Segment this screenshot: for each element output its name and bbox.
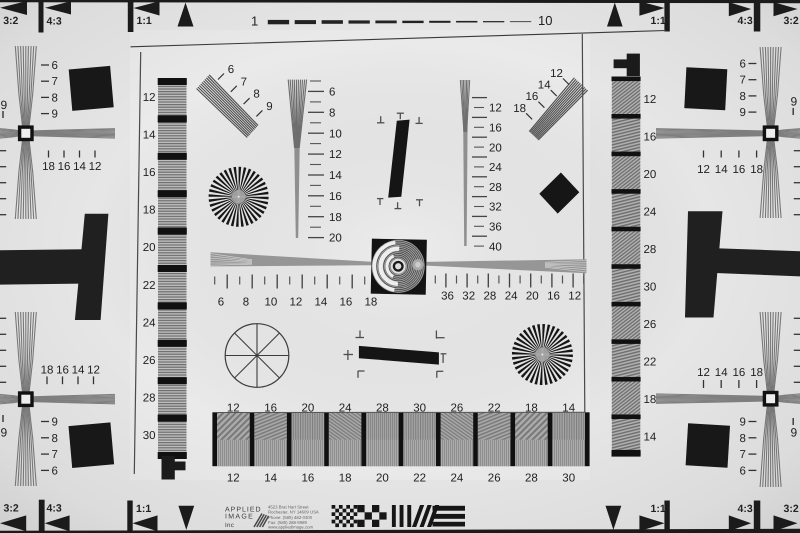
svg-text:9: 9	[52, 109, 58, 121]
svg-text:12: 12	[550, 68, 563, 80]
svg-text:20: 20	[644, 169, 657, 181]
svg-text:3:2: 3:2	[784, 503, 799, 515]
svg-text:18: 18	[41, 364, 54, 376]
svg-text:18: 18	[365, 297, 378, 309]
svg-text:30: 30	[143, 430, 156, 442]
svg-text:14: 14	[329, 170, 342, 182]
svg-text:12: 12	[329, 149, 342, 161]
svg-text:4:3: 4:3	[47, 503, 62, 515]
svg-text:28: 28	[143, 392, 156, 404]
svg-text:10: 10	[265, 297, 278, 309]
svg-text:14: 14	[143, 130, 156, 142]
svg-text:7: 7	[241, 76, 247, 88]
svg-text:36: 36	[441, 291, 454, 303]
svg-text:9: 9	[739, 107, 745, 119]
svg-text:3:2: 3:2	[3, 15, 18, 27]
svg-text:30: 30	[644, 282, 657, 294]
svg-text:12: 12	[697, 164, 710, 176]
svg-text:1: 1	[251, 14, 258, 29]
svg-text:24: 24	[143, 317, 156, 329]
svg-text:22: 22	[143, 280, 156, 292]
svg-text:9: 9	[1, 98, 8, 112]
svg-text:20: 20	[526, 291, 539, 303]
svg-text:36: 36	[489, 222, 502, 234]
svg-text:4:3: 4:3	[47, 16, 62, 28]
svg-text:24: 24	[339, 402, 352, 414]
svg-text:APPLIED: APPLIED	[225, 507, 262, 514]
svg-text:9: 9	[739, 417, 745, 429]
svg-text:12: 12	[489, 103, 502, 115]
svg-text:IMAGE: IMAGE	[225, 514, 254, 521]
svg-text:6: 6	[329, 87, 335, 99]
svg-text:28: 28	[489, 182, 502, 194]
svg-text:40: 40	[489, 241, 502, 253]
svg-text:18: 18	[42, 161, 55, 173]
svg-text:9: 9	[266, 101, 272, 113]
svg-text:6: 6	[739, 59, 745, 71]
svg-text:16: 16	[644, 132, 657, 144]
svg-text:16: 16	[302, 473, 315, 485]
svg-text:12: 12	[87, 364, 100, 376]
svg-text:20: 20	[376, 473, 389, 485]
svg-text:26: 26	[644, 319, 657, 331]
svg-text:24: 24	[489, 162, 502, 174]
svg-text:16: 16	[264, 402, 277, 414]
svg-text:6: 6	[228, 64, 234, 76]
svg-text:18: 18	[750, 367, 763, 379]
svg-text:6: 6	[739, 465, 745, 477]
svg-text:9: 9	[791, 426, 798, 440]
svg-text:7: 7	[52, 449, 58, 461]
svg-text:16: 16	[340, 297, 353, 309]
svg-text:12: 12	[89, 161, 102, 173]
svg-text:20: 20	[143, 242, 156, 254]
svg-text:16: 16	[547, 291, 560, 303]
svg-text:Inc: Inc	[225, 522, 234, 529]
svg-text:www.appliedimage.com: www.appliedimage.com	[268, 525, 314, 530]
svg-text:4:3: 4:3	[738, 503, 753, 515]
svg-text:16: 16	[489, 123, 502, 135]
svg-text:22: 22	[413, 473, 426, 485]
svg-text:14: 14	[715, 367, 728, 379]
svg-text:12: 12	[227, 402, 240, 414]
svg-text:22: 22	[644, 357, 657, 369]
svg-text:12: 12	[697, 367, 710, 379]
svg-text:18: 18	[329, 212, 342, 224]
svg-text:16: 16	[56, 364, 69, 376]
svg-text:32: 32	[462, 291, 475, 303]
svg-text:26: 26	[451, 402, 464, 414]
svg-text:26: 26	[143, 355, 156, 367]
svg-text:10: 10	[329, 128, 342, 140]
svg-text:8: 8	[739, 91, 745, 103]
svg-text:8: 8	[253, 89, 259, 101]
svg-text:12: 12	[568, 291, 581, 303]
svg-text:1:1: 1:1	[136, 503, 151, 515]
svg-text:1:1: 1:1	[651, 503, 666, 515]
svg-text:18: 18	[143, 205, 156, 217]
svg-text:12: 12	[143, 92, 156, 104]
svg-text:7: 7	[739, 75, 745, 87]
svg-text:28: 28	[376, 402, 389, 414]
svg-text:8: 8	[329, 108, 335, 120]
svg-text:7: 7	[52, 76, 58, 88]
svg-text:32: 32	[489, 202, 502, 214]
svg-text:16: 16	[143, 167, 156, 179]
svg-text:30: 30	[562, 473, 575, 485]
svg-text:9: 9	[52, 417, 58, 429]
svg-text:14: 14	[538, 80, 551, 92]
svg-text:20: 20	[329, 233, 342, 245]
svg-text:7: 7	[739, 449, 745, 461]
svg-text:16: 16	[733, 164, 746, 176]
svg-text:18: 18	[339, 473, 352, 485]
svg-text:8: 8	[52, 92, 58, 104]
svg-text:14: 14	[315, 297, 328, 309]
svg-text:14: 14	[715, 164, 728, 176]
svg-text:8: 8	[739, 433, 745, 445]
svg-text:12: 12	[227, 473, 240, 485]
svg-text:18: 18	[525, 402, 538, 414]
svg-text:4:3: 4:3	[738, 15, 753, 27]
svg-text:24: 24	[505, 291, 518, 303]
svg-text:14: 14	[562, 402, 575, 414]
svg-text:26: 26	[488, 473, 501, 485]
svg-text:1:1: 1:1	[651, 15, 666, 27]
svg-text:14: 14	[72, 364, 85, 376]
svg-text:3:2: 3:2	[784, 15, 799, 27]
svg-text:9: 9	[791, 95, 798, 109]
svg-text:16: 16	[733, 367, 746, 379]
svg-text:14: 14	[644, 432, 657, 444]
svg-text:16: 16	[526, 91, 539, 103]
svg-text:28: 28	[644, 244, 657, 256]
svg-text:14: 14	[73, 161, 86, 173]
svg-text:12: 12	[290, 297, 303, 309]
svg-text:18: 18	[513, 103, 526, 115]
svg-text:1:1: 1:1	[137, 15, 152, 27]
svg-text:22: 22	[488, 402, 501, 414]
svg-text:28: 28	[484, 291, 497, 303]
svg-text:6: 6	[52, 60, 58, 72]
svg-text:8: 8	[52, 433, 58, 445]
svg-text:9: 9	[1, 426, 8, 440]
svg-text:24: 24	[451, 473, 464, 485]
svg-text:14: 14	[264, 473, 277, 485]
svg-text:12: 12	[644, 94, 657, 106]
svg-text:20: 20	[302, 402, 315, 414]
svg-text:20: 20	[489, 142, 502, 154]
svg-text:3:2: 3:2	[4, 503, 19, 515]
svg-text:24: 24	[644, 207, 657, 219]
svg-text:28: 28	[525, 473, 538, 485]
svg-text:6: 6	[218, 297, 224, 309]
svg-text:16: 16	[329, 191, 342, 203]
svg-text:30: 30	[413, 402, 426, 414]
svg-text:18: 18	[750, 164, 763, 176]
svg-text:18: 18	[644, 394, 657, 406]
svg-text:16: 16	[58, 161, 71, 173]
svg-text:6: 6	[52, 465, 58, 477]
svg-text:8: 8	[243, 297, 249, 309]
svg-text:10: 10	[538, 13, 552, 28]
